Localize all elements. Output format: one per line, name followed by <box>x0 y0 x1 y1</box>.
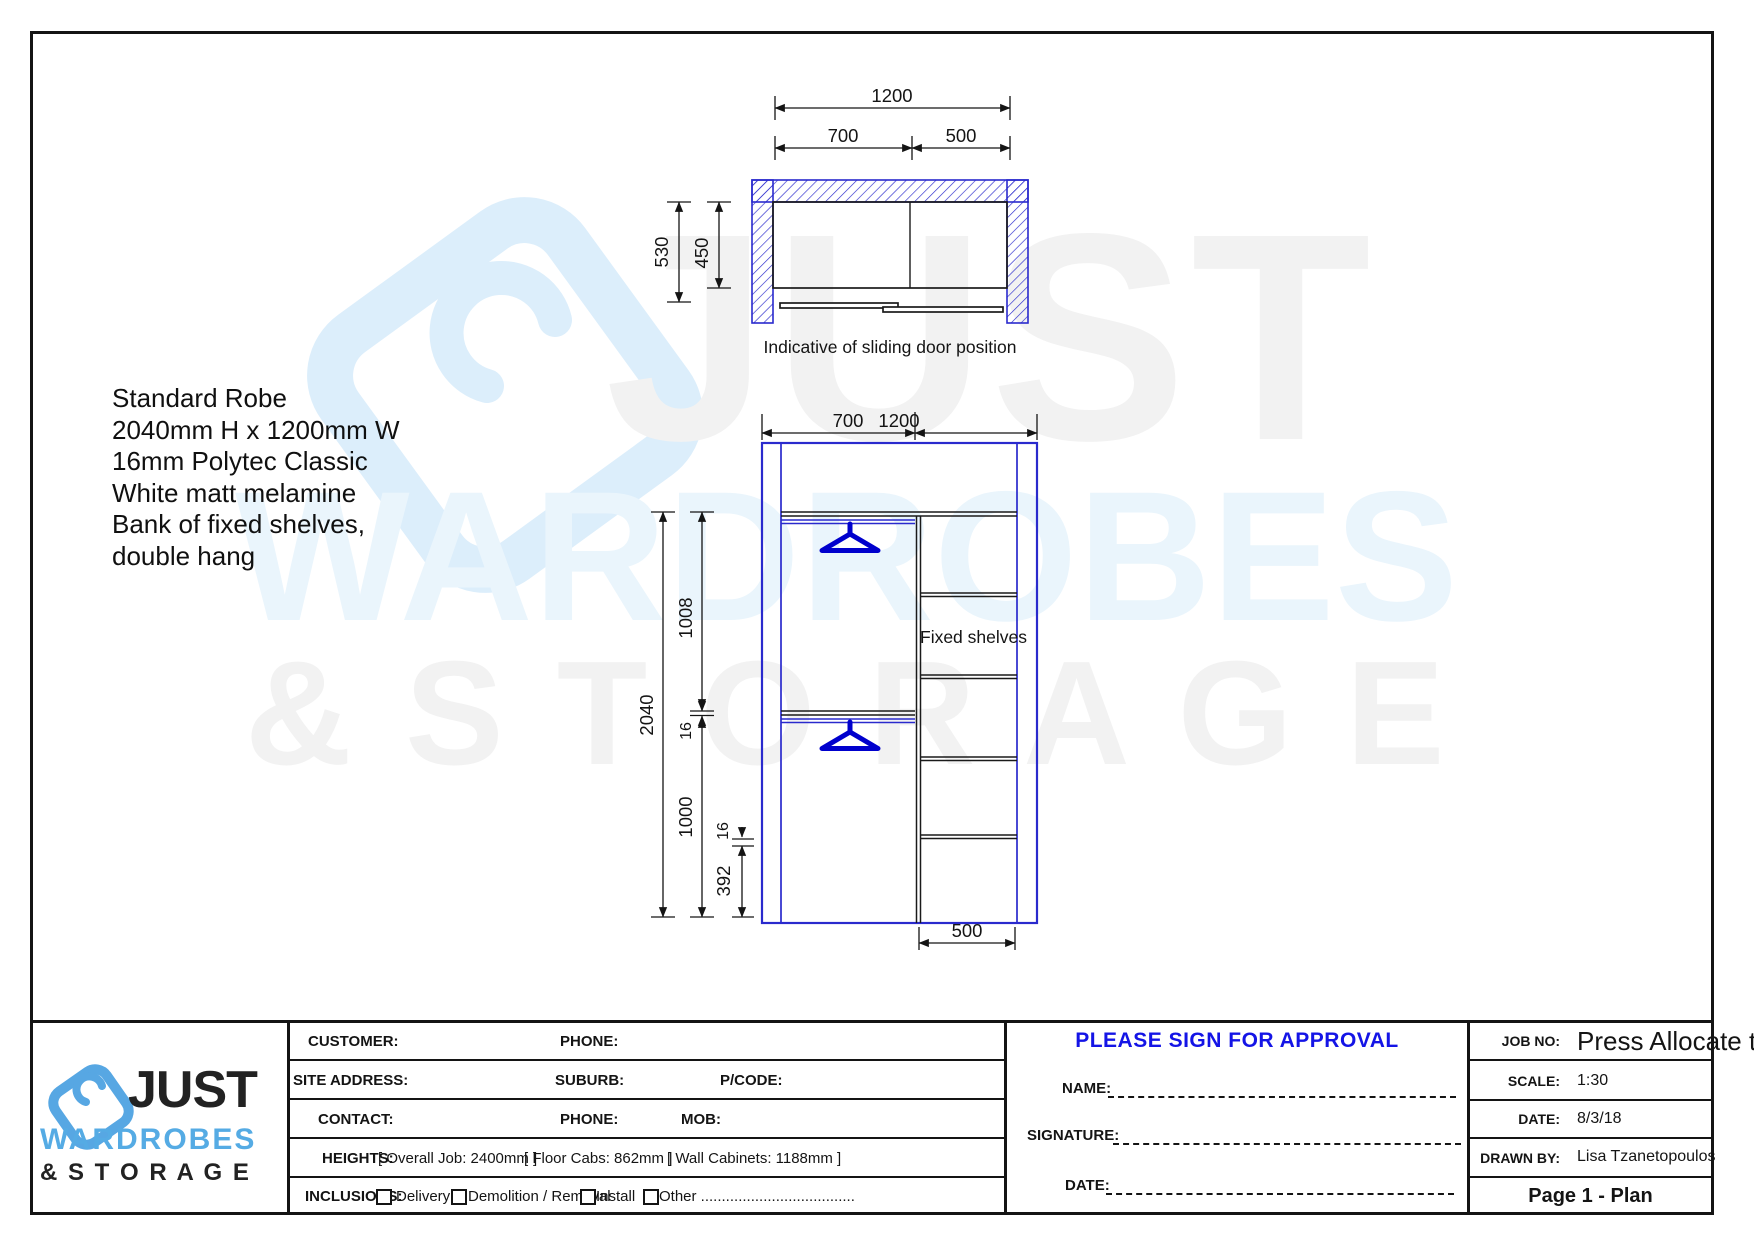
plan-dim-left: 700 <box>828 125 859 146</box>
install-label: Install <box>596 1188 635 1205</box>
heights-overall-job: [ Overall Job: 2400mm ] <box>378 1150 537 1167</box>
divider <box>1467 1176 1714 1178</box>
elevation-view: Fixed shelves 700 1200 2040 1008 16 1000 <box>600 400 1100 960</box>
date-line <box>1106 1179 1454 1195</box>
mob-label: MOB: <box>681 1111 721 1128</box>
divider <box>1467 1059 1714 1061</box>
plan-dim-right: 500 <box>946 125 977 146</box>
plan-sliding-doors <box>780 303 1003 312</box>
divider <box>287 1176 1007 1178</box>
phone-label: PHONE: <box>560 1111 618 1128</box>
plan-dim-overall: 1200 <box>871 85 912 106</box>
drawn-by-label: DRAWN BY: <box>1475 1150 1560 1166</box>
plan-dim-depth-inner: 450 <box>691 238 712 269</box>
elev-dim-left: 700 <box>833 410 864 431</box>
elev-dim-shelf-width: 500 <box>952 920 983 941</box>
drawn-by-value: Lisa Tzanetopoulos <box>1577 1148 1715 1166</box>
spec-note-line: Bank of fixed shelves, <box>112 509 400 541</box>
customer-label: CUSTOMER: <box>308 1033 399 1050</box>
plan-cabinet-outline <box>773 202 1007 288</box>
logo-wardrobes: WARDROBES <box>40 1123 256 1157</box>
demolition-checkbox <box>451 1189 467 1205</box>
elev-dim-mid-16: 16 <box>678 722 695 740</box>
install-checkbox <box>580 1189 596 1205</box>
drawing-sheet: JUST WARDROBES & S T O R A G E Standard … <box>0 0 1754 1239</box>
scale-label: SCALE: <box>1475 1073 1560 1089</box>
elevation-shelves <box>781 512 1017 923</box>
name-label: NAME: <box>1062 1080 1111 1097</box>
logo-just: JUST <box>128 1060 257 1120</box>
titleblock-top-border <box>30 1020 1714 1023</box>
divider <box>287 1137 1007 1139</box>
spec-note: Standard Robe 2040mm H x 1200mm W 16mm P… <box>112 383 400 572</box>
divider <box>287 1098 1007 1100</box>
suburb-label: SUBURB: <box>555 1072 624 1089</box>
scale-value: 1:30 <box>1577 1072 1608 1090</box>
plan-caption: Indicative of sliding door position <box>764 337 1017 357</box>
other-checkbox <box>643 1189 659 1205</box>
signature-label: SIGNATURE: <box>1027 1127 1119 1144</box>
plan-dim-depth-outer: 530 <box>651 237 672 268</box>
info-date-label: DATE: <box>1475 1111 1560 1127</box>
elev-dim-height: 2040 <box>636 694 657 735</box>
divider <box>287 1059 1007 1061</box>
date-label: DATE: <box>1065 1177 1110 1194</box>
contact-label: CONTACT: <box>318 1111 394 1128</box>
elev-dim-plinth: 392 <box>713 866 734 897</box>
delivery-label: Delivery <box>396 1188 450 1205</box>
elev-dim-lower: 1000 <box>675 796 696 837</box>
site-address-label: SITE ADDRESS: <box>293 1072 408 1089</box>
page-label: Page 1 - Plan <box>1467 1185 1714 1208</box>
divider <box>1467 1099 1714 1101</box>
logo-storage: & S T O R A G E <box>40 1159 251 1187</box>
delivery-checkbox <box>376 1189 392 1205</box>
approval-heading: PLEASE SIGN FOR APPROVAL <box>1004 1029 1470 1053</box>
elevation-carcass <box>762 443 1037 923</box>
spec-note-line: 16mm Polytec Classic <box>112 446 400 478</box>
phone-label: PHONE: <box>560 1033 618 1050</box>
plan-view: 1200 700 500 530 450 Indicative of slidi… <box>640 60 1060 370</box>
elev-dim-upper: 1008 <box>675 597 696 638</box>
spec-note-line: double hang <box>112 541 400 573</box>
elev-dim-overall: 1200 <box>878 410 919 431</box>
heights-wall-cabinets: [ Wall Cabinets: 1188mm ] <box>667 1150 841 1167</box>
divider <box>287 1020 290 1215</box>
spec-note-line: Standard Robe <box>112 383 400 415</box>
elevation-dimensions: 700 1200 2040 1008 16 1000 16 392 <box>636 410 1037 950</box>
fixed-shelves-label: Fixed shelves <box>920 627 1027 647</box>
spec-note-line: 2040mm H x 1200mm W <box>112 415 400 447</box>
divider <box>1467 1137 1714 1139</box>
pcode-label: P/CODE: <box>720 1072 783 1089</box>
job-no-label: JOB NO: <box>1475 1033 1560 1049</box>
hanger-icon <box>822 524 878 551</box>
other-label: Other ..................................… <box>659 1188 855 1205</box>
heights-floor-cabs: [ Floor Cabs: 862mm ] <box>524 1150 672 1167</box>
signature-line <box>1113 1129 1461 1145</box>
job-no-value: Press Allocate to a <box>1577 1026 1754 1057</box>
elev-dim-low-16: 16 <box>715 822 732 840</box>
spec-note-line: White matt melamine <box>112 478 400 510</box>
info-date-value: 8/3/18 <box>1577 1110 1621 1128</box>
name-signature-line <box>1108 1082 1456 1098</box>
hanger-icon <box>822 722 878 749</box>
